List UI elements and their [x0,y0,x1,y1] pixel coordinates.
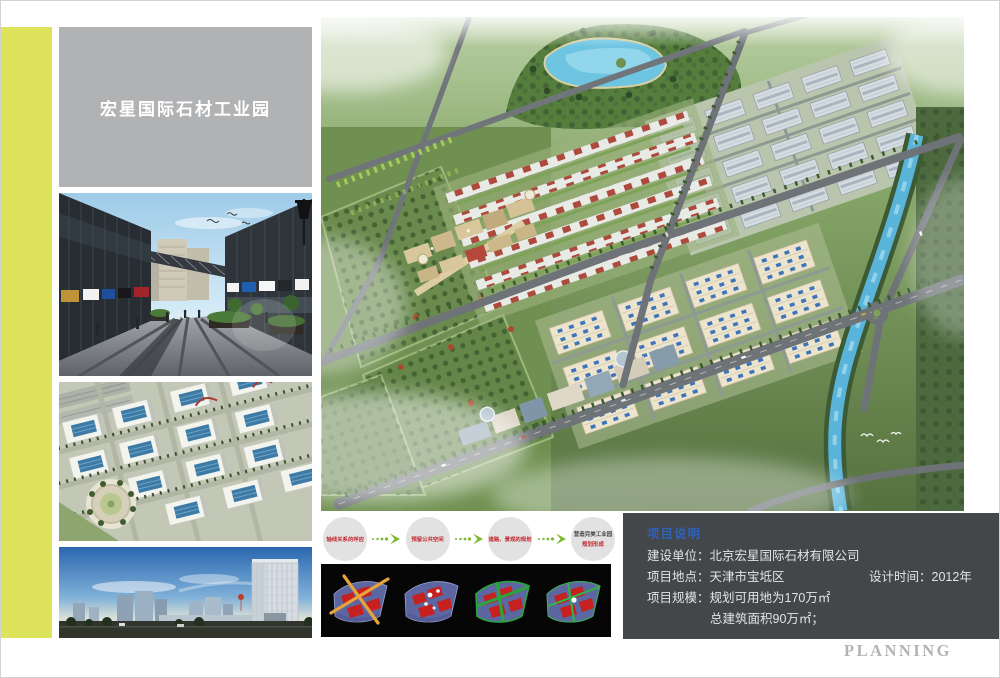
flow-step-4-line2: 规划形成 [582,540,604,548]
page-title: 宏星国际石材工业园 [100,95,271,120]
concept-diagram-axes [328,573,392,629]
title-box: 宏星国际石材工业园 [59,27,312,187]
circular-plaza [86,479,136,529]
street-view-rendering [59,193,312,376]
skyline-rendering [59,547,312,638]
flow-step-4: 营造完美工业园 规划形成 [571,517,615,561]
flow-step-2-label: 预留公共空间 [411,535,443,543]
flow-step-4-line1: 营造完美工业园 [574,530,613,538]
project-info-panel: 项目说明 建设单位：北京宏星国际石材有限公司 项目地点：天津市宝坻区 设计时间：… [623,513,1000,639]
concept-diagram-panel [321,564,611,637]
dotted-arrow-icon [537,533,567,545]
industrial-aerial-rendering [59,382,312,541]
row-label: 设计时间： [869,570,932,584]
flow-step-1-label: 轴线关系的呼应 [326,535,364,543]
dotted-arrow-icon [454,533,484,545]
balloon-icon [238,594,244,600]
master-plan-image [321,17,964,511]
row-label: 项目规模： [647,591,710,605]
flow-step-1: 轴线关系的呼应 [323,517,367,561]
row-value: 规划可用地为170万㎡ [710,591,831,605]
street-view-image [59,193,312,376]
concept-diagram-roads [470,573,534,629]
row-label: 建设单位： [647,549,710,563]
project-info-row: 建设单位：北京宏星国际石材有限公司 [647,549,989,563]
row-value: 总建筑面积90万㎡； [710,612,824,626]
master-plan-rendering [321,17,964,511]
office-tower [252,559,298,625]
planning-label: PLANNING [844,641,952,661]
project-info-row: 项目地点：天津市宝坻区 设计时间：2012年 [647,570,989,584]
design-time: 设计时间：2012年 [869,570,972,584]
project-info-header: 项目说明 [647,523,989,542]
dotted-arrow-icon [371,533,401,545]
row-value: 北京宏星国际石材有限公司 [710,549,860,563]
project-info-row: 项目规模：规划可用地为170万㎡ [647,591,989,605]
industrial-aerial-image [59,382,312,541]
accent-bar [1,27,52,638]
concept-diagram-final [541,573,605,629]
flow-step-2: 预留公共空间 [406,517,450,561]
design-process-flow: 轴线关系的呼应 预留公共空间 道路、景观的规划 营造完美工业园 规划形成 [323,515,615,563]
project-info-row: 总建筑面积90万㎡； [647,612,989,626]
row-value: 2012年 [932,570,972,584]
flow-step-3: 道路、景观的规划 [488,517,532,561]
concept-diagram-nodes [399,573,463,629]
row-label: 项目地点： [647,570,710,584]
row-value: 天津市宝坻区 [710,570,785,584]
flow-step-3-label: 道路、景观的规划 [489,535,532,543]
presentation-board: 宏星国际石材工业园 [0,0,1000,678]
skyline-image [59,547,312,638]
